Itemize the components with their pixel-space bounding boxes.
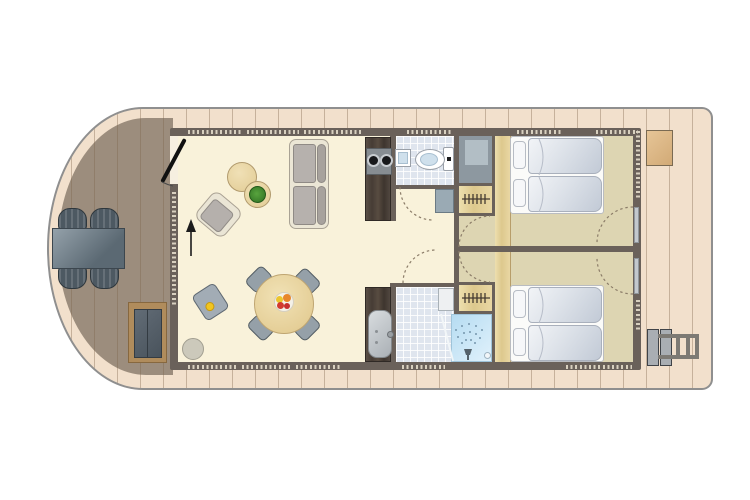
toy-duck <box>204 300 216 312</box>
outdoor-chair <box>58 267 87 289</box>
outdoor-storage-bench <box>128 302 167 363</box>
outdoor-chair <box>58 208 87 230</box>
bench-panel <box>134 309 162 358</box>
mattress <box>528 325 602 361</box>
outdoor-chair <box>90 208 119 230</box>
window-band <box>407 130 452 134</box>
window-band <box>402 365 445 369</box>
bench-divider <box>147 309 148 358</box>
mattress <box>528 138 602 174</box>
window-band <box>596 130 638 134</box>
fruit-red <box>277 302 284 309</box>
window-band <box>172 192 176 307</box>
bedside-shelf-bedroom1 <box>495 136 511 246</box>
outdoor-chair <box>90 267 119 289</box>
stern-door-leaf-bedroom2 <box>634 258 639 294</box>
window-band <box>296 365 340 369</box>
pillow <box>513 328 526 356</box>
fruit-red <box>284 303 290 309</box>
window-band <box>188 365 237 369</box>
pillow <box>513 141 526 169</box>
outdoor-dining-table <box>52 228 125 269</box>
houseboat-floor-plan <box>0 0 750 500</box>
pillow <box>513 290 526 318</box>
pillow <box>513 179 526 207</box>
sofa <box>289 139 329 229</box>
fruit-orange <box>283 294 291 302</box>
pouf <box>182 338 204 360</box>
wardrobe-bedroom2 <box>459 285 492 311</box>
hand-basin-bowl <box>398 152 408 164</box>
burner <box>367 154 380 167</box>
mattress <box>528 287 602 323</box>
faucet <box>387 331 394 338</box>
ladder-rung <box>676 334 680 359</box>
window-band <box>188 130 242 134</box>
bathroom-appliance <box>438 288 454 311</box>
toilet <box>415 149 445 170</box>
potted-plant <box>249 186 266 203</box>
hallway-passage <box>390 221 396 283</box>
window-band <box>304 130 362 134</box>
shower-drain <box>484 352 491 359</box>
window-band <box>636 131 640 199</box>
hall-cabinet <box>435 189 454 213</box>
window-band <box>242 365 292 369</box>
technical-unit <box>465 140 488 165</box>
ladder-rung <box>695 334 699 359</box>
bedroom2-entry-floor <box>459 252 495 282</box>
stern-door-leaf-bedroom1 <box>634 207 639 243</box>
window-band <box>566 365 632 369</box>
wardrobe-bedroom1 <box>459 186 492 213</box>
mattress <box>528 176 602 212</box>
drain-dot <box>375 341 378 344</box>
drain-dot <box>375 330 378 333</box>
window-band <box>247 130 299 134</box>
burner <box>380 154 393 167</box>
window-band <box>517 130 562 134</box>
flush-button <box>447 157 451 161</box>
bedside-shelf-bedroom2 <box>495 252 511 362</box>
deck-storage-box <box>646 130 673 166</box>
ladder-rung <box>686 334 690 359</box>
window-band <box>636 300 640 330</box>
bedroom1-entry-floor <box>459 216 495 246</box>
